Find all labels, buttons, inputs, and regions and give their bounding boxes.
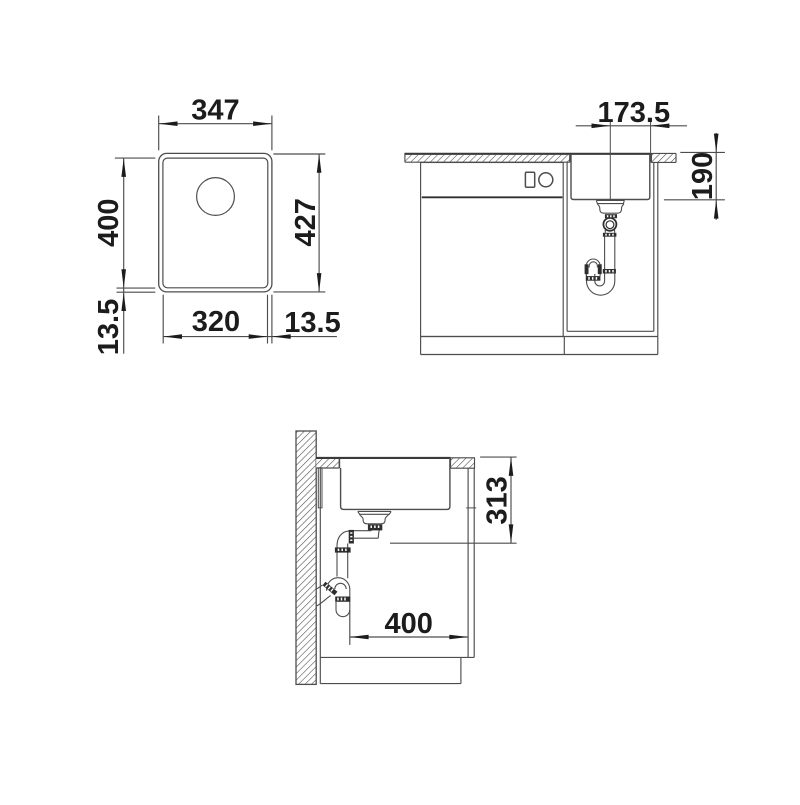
svg-text:427: 427: [290, 198, 322, 246]
svg-text:400: 400: [385, 608, 433, 640]
svg-text:13.5: 13.5: [93, 299, 125, 355]
svg-text:313: 313: [481, 476, 513, 524]
svg-text:173.5: 173.5: [598, 97, 671, 129]
svg-text:347: 347: [191, 95, 239, 127]
svg-text:13.5: 13.5: [284, 307, 340, 339]
svg-text:190: 190: [687, 152, 719, 200]
svg-text:320: 320: [192, 306, 240, 338]
svg-text:400: 400: [93, 199, 125, 247]
